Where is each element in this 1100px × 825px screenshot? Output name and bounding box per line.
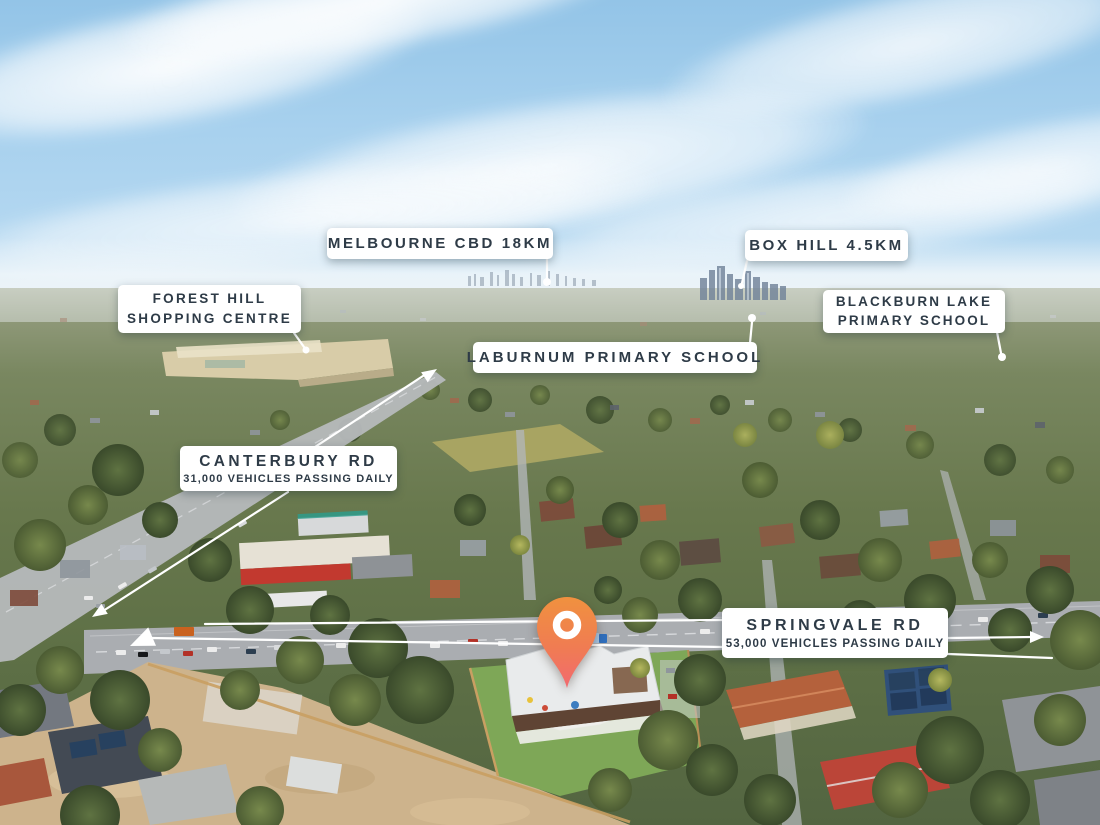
label-text: FOREST HILL — [153, 289, 267, 309]
leader-forest-hill — [294, 333, 310, 354]
label-blackburn-lake-primary-school: BLACKBURN LAKE PRIMARY SCHOOL — [823, 290, 1005, 333]
label-text: PRIMARY SCHOOL — [838, 312, 990, 331]
traffic-volume: 53,000 VEHICLES PASSING DAILY — [726, 638, 945, 650]
label-text: SHOPPING CENTRE — [127, 309, 292, 329]
label-text: MELBOURNE CBD 18KM — [328, 235, 552, 252]
label-text: BOX HILL 4.5KM — [749, 237, 903, 254]
label-springvale-rd: SPRINGVALE RD 53,000 VEHICLES PASSING DA… — [722, 608, 948, 658]
label-box-hill: BOX HILL 4.5KM — [745, 230, 908, 261]
traffic-volume: 31,000 VEHICLES PASSING DAILY — [183, 473, 393, 485]
leader-blackburn-lake — [997, 332, 1006, 361]
leader-canterbury-southwest-arrow — [92, 492, 288, 617]
leader-canterbury-northeast-arrow — [315, 369, 437, 447]
label-text: BLACKBURN LAKE — [836, 293, 992, 312]
property-location-pin-icon — [534, 596, 600, 690]
aerial-locality-map: MELBOURNE CBD 18KM BOX HILL 4.5KM FOREST… — [0, 0, 1100, 825]
label-laburnum-primary-school: LABURNUM PRIMARY SCHOOL — [473, 342, 757, 373]
annotation-leader-lines — [0, 0, 1100, 825]
road-name: CANTERBURY RD — [199, 453, 378, 471]
label-canterbury-rd: CANTERBURY RD 31,000 VEHICLES PASSING DA… — [180, 446, 397, 491]
label-forest-hill-shopping-centre: FOREST HILL SHOPPING CENTRE — [118, 285, 301, 333]
leader-box-hill — [738, 261, 747, 289]
label-melbourne-cbd: MELBOURNE CBD 18KM — [327, 228, 553, 259]
label-text: LABURNUM PRIMARY SCHOOL — [467, 349, 764, 366]
leader-melbourne-cbd — [543, 259, 551, 286]
leader-springvale-east-arrow — [948, 631, 1052, 658]
leader-springvale-west-arrow — [130, 620, 722, 647]
road-name: SPRINGVALE RD — [746, 617, 923, 635]
leader-laburnum — [748, 314, 756, 343]
